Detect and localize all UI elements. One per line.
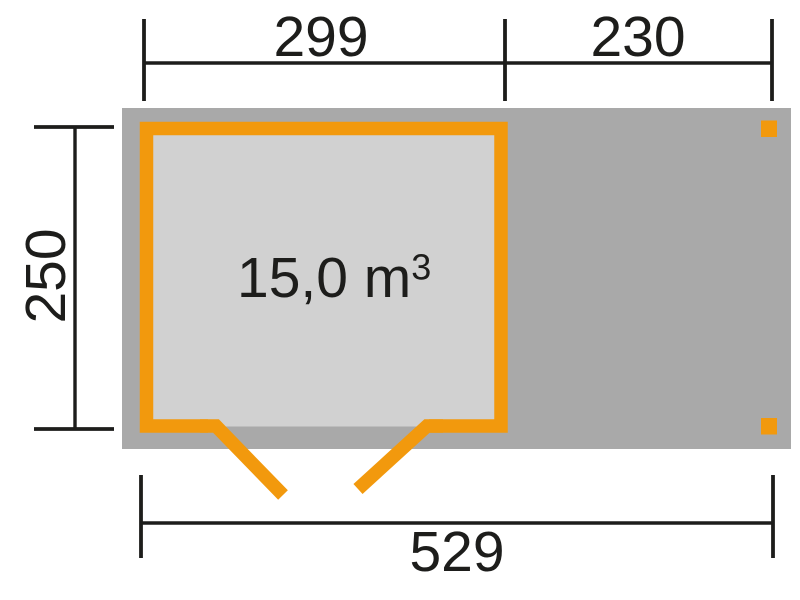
svg-text:299: 299: [273, 5, 368, 69]
svg-text:15,0 m3: 15,0 m3: [237, 246, 431, 310]
svg-text:529: 529: [409, 520, 504, 584]
svg-text:250: 250: [14, 228, 78, 323]
svg-text:230: 230: [590, 5, 685, 69]
